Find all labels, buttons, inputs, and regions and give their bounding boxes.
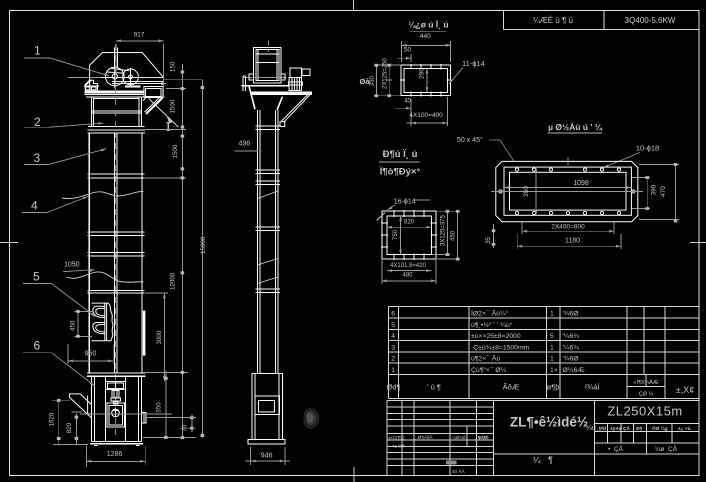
svg-text:5: 5 [550,333,554,340]
svg-text:1286: 1286 [107,451,123,458]
svg-text:4: 4 [391,333,395,340]
svg-text:70: 70 [182,424,189,431]
svg-text:¸¶ÑÌ: ¸¶ÑÌ [597,424,607,432]
svg-text:4: 4 [31,199,38,213]
svg-text:«Ï¶X¼ÅÆ: «Ï¶X¼ÅÆ [634,379,659,386]
svg-text:• ÇÅ: • ÇÅ [608,444,624,453]
svg-text:1: 1 [550,344,554,351]
svg-text:¸,Ø¶ÃðÅ: ¸,Ø¶ÃðÅ [415,434,433,441]
svg-text:ø¶þ: ø¶þ [547,383,560,392]
svg-text:11-ɸ14: 11-ɸ14 [462,59,485,68]
svg-text:ÃðÆ: ÃðÆ [503,383,520,392]
svg-text:350: 350 [370,76,376,87]
svg-text:750: 750 [393,229,399,240]
svg-text:±ù××25±8=2000: ±ù××25±8=2000 [471,333,521,340]
svg-text:¼ø ÇÅ: ¼ø ÇÅ [655,444,678,453]
svg-text:Ï¶ò¶Ðý×°: Ï¶ò¶Ðý×° [379,167,421,178]
svg-text:Ø¼6Æ·: Ø¼6Æ· [563,367,587,374]
svg-text:ù¶2×¯ Âù: ù¶2×¯ Âù [471,354,500,363]
svg-text:1050: 1050 [64,262,80,269]
svg-text:6: 6 [34,339,41,353]
svg-text:350: 350 [156,402,163,413]
svg-text:Çù¶"×¯ Ø¼: Çù¶"×¯ Ø¼ [471,366,507,374]
svg-text:Ød¶: Ød¶ [386,383,400,392]
svg-text:470: 470 [660,186,667,197]
svg-text:390: 390 [651,184,658,195]
svg-text:ÐQ®: ÐQ® [478,434,489,440]
svg-text:1×: 1× [550,367,558,374]
svg-text:5: 5 [33,270,40,284]
svg-text:4± 9Ø: 4± 9Ø [392,443,405,448]
svg-text:'¾6Ø: '¾6Ø [563,311,580,318]
svg-text:1180: 1180 [565,238,580,245]
svg-text:±ÿXØ: ±ÿXØ [610,426,622,432]
svg-text:960: 960 [85,350,97,357]
svg-text:' ú ¶: ' ú ¶ [427,383,441,392]
svg-text:15000: 15000 [200,236,207,254]
svg-text:ZL250X15m: ZL250X15m [607,404,682,419]
svg-text:450: 450 [69,320,76,331]
svg-text:·Ç±ù¾±8=1500mm: ·Ç±ù¾±8=1500mm [471,344,530,351]
svg-text:40 ÄÃ: 40 ÄÃ [452,468,465,474]
svg-text:5: 5 [391,322,395,329]
svg-text:¼ ¶: ¼ ¶ [533,455,553,465]
svg-text:Ø¶: Ø¶ [636,426,643,432]
svg-text:917: 917 [134,32,145,39]
svg-text:±¿ ×ù: ±¿ ×ù [678,426,691,432]
svg-text:946: 946 [261,453,273,460]
svg-text:Ð¶ú Ï¸ ú: Ð¶ú Ï¸ ú [383,149,418,160]
svg-text:2X400=800: 2X400=800 [551,224,585,231]
svg-text:150: 150 [170,61,177,72]
svg-text:2X125=250: 2X125=250 [383,57,389,89]
svg-text:1500: 1500 [170,99,177,113]
svg-text:ÖØ ¾g: ÖØ ¾g [652,425,668,432]
svg-text:4X100=400: 4X100=400 [409,112,443,119]
svg-text:1620: 1620 [49,412,56,426]
svg-text:2: 2 [34,115,41,129]
svg-text:ZL¶•ê½ìdé½: ZL¶•ê½ìdé½ [510,415,588,430]
svg-text:¼ÆÈ ù ¶ ú: ¼ÆÈ ù ¶ ú [533,16,573,25]
svg-text:40: 40 [404,99,411,105]
svg-text:'¼6¾: '¼6¾ [563,333,580,340]
svg-text:ÇØ ¼: ÇØ ¼ [639,392,654,398]
svg-text:±xÇ(¶ý): ±xÇ(¶ý) [388,435,404,440]
svg-text:16-ɸ14: 16-ɸ14 [394,199,416,206]
svg-text:1: 1 [391,367,395,374]
svg-text:10-ɸ18: 10-ɸ18 [636,144,659,153]
svg-text:µ Ø½Àù ú ' ¼: µ Ø½Àù ú ' ¼ [548,122,603,132]
svg-text:±,X¢: ±,X¢ [676,385,694,395]
svg-text:¼Ø×Ø: ¼Ø×Ø [452,435,466,440]
svg-text:50 x 45°: 50 x 45° [457,136,483,144]
svg-text:ÏØ2×¯ Âù¼°: ÏØ2×¯ Âù¼° [471,309,509,318]
svg-text:1500: 1500 [172,144,179,158]
svg-text:3: 3 [34,151,41,165]
svg-text:3Q400-5.6KW: 3Q400-5.6KW [625,16,676,25]
svg-text:2: 2 [391,356,395,363]
svg-text:'¼6¾: '¼6¾ [563,344,580,351]
svg-text:35: 35 [486,237,492,244]
svg-text:ÇÅ: ÇÅ [623,425,630,432]
svg-text:350: 350 [523,186,530,197]
svg-text:3X125=375: 3X125=375 [440,214,446,246]
svg-text:6: 6 [391,311,395,318]
svg-text:50: 50 [404,47,412,54]
svg-text:1: 1 [550,356,554,363]
svg-text:1: 1 [34,44,41,58]
svg-text:ù¶¸•½°¯ ' ¼ù°: ù¶¸•½°¯ ' ¼ù° [471,321,513,329]
svg-text:480: 480 [402,273,413,279]
svg-text:1098: 1098 [573,180,589,187]
svg-text:'¾6Ø: '¾6Ø [563,356,580,363]
svg-text:450: 450 [451,230,457,241]
svg-text:12000: 12000 [170,272,177,290]
svg-text:496: 496 [239,141,251,148]
svg-text:1: 1 [550,311,554,318]
svg-text:820: 820 [66,422,73,433]
svg-text:3000: 3000 [156,330,163,344]
svg-text:3: 3 [391,344,395,351]
svg-text:4X101.8=420: 4X101.8=420 [390,263,427,269]
svg-text:440: 440 [420,33,431,40]
svg-text:820: 820 [404,219,415,225]
svg-text:290: 290 [419,68,426,79]
svg-text:²¾áÏ: ²¾áÏ [584,383,600,392]
svg-text:¼¿ø ú Ï¸ ú: ¼¿ø ú Ï¸ ú [408,20,448,30]
